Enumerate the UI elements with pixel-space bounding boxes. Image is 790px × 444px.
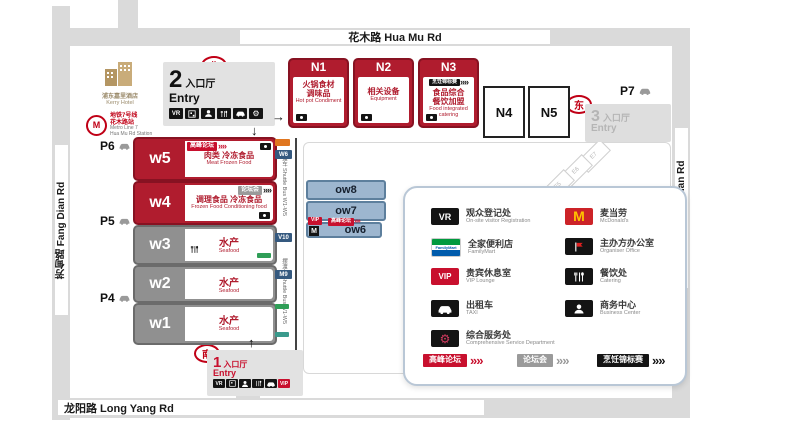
legend-row-mcdonalds[interactable]: M 麦当劳McDonald's bbox=[565, 208, 629, 225]
legend-badge-cooking-championship[interactable]: 烹饪锦标赛 »» bbox=[597, 354, 664, 367]
entry-3[interactable]: 3 入口厅 Entry bbox=[585, 104, 671, 142]
hall-ow8-label: ow8 bbox=[335, 184, 356, 196]
hall-w3[interactable]: w3 水产 Seafood bbox=[133, 225, 277, 265]
legend-en: Business Center bbox=[600, 311, 640, 317]
metro-landmark: M 地铁7号线 花木路站 Metro Line 7 Hua Mu Rd Stat… bbox=[86, 113, 152, 137]
legend-row-business-center[interactable]: 商务中心Business Center bbox=[565, 300, 640, 317]
hall-n5-id: N5 bbox=[541, 105, 558, 120]
hall-w1[interactable]: w1 水产 Seafood bbox=[133, 303, 277, 345]
hall-w1-zh: 水产 bbox=[185, 312, 273, 327]
hall-e6-label: E6 bbox=[571, 166, 580, 175]
car-icon bbox=[118, 214, 131, 228]
entry-2-zh: 入口厅 bbox=[185, 75, 215, 90]
badge-label: 高峰论坛 bbox=[423, 354, 467, 367]
hall-n1[interactable]: N1 火锅食材调味品 Hot pot Condiment bbox=[288, 58, 349, 128]
camera-icon bbox=[260, 143, 271, 150]
taxi-icon bbox=[431, 300, 459, 317]
hall-w3-id: w3 bbox=[135, 227, 185, 263]
mcdonalds-icon: M bbox=[565, 208, 593, 225]
orange-marker bbox=[275, 139, 290, 146]
legend-row-vip-lounge[interactable]: VIP 贵宾休息室VIP Lounge bbox=[431, 268, 511, 285]
hall-ow6-label: ow6 bbox=[345, 224, 366, 236]
flag-icon bbox=[565, 238, 593, 255]
parking-p6: P6 bbox=[100, 139, 131, 153]
entry-2-en: Entry bbox=[169, 91, 269, 105]
legend-badge-forum[interactable]: 论坛会 »» bbox=[517, 354, 568, 367]
entry-1[interactable]: 1 入口厅 Entry VR VIP bbox=[207, 350, 303, 396]
hall-e7-label: E7 bbox=[589, 151, 598, 160]
hall-w4-en: Frozen Food Conditioning food bbox=[185, 205, 273, 211]
parking-p4: P4 bbox=[100, 291, 131, 305]
familymart-icon: FamilyMart bbox=[431, 238, 461, 257]
hall-n5[interactable]: N5 bbox=[528, 86, 570, 138]
car-icon bbox=[118, 139, 131, 153]
hotel-icon bbox=[103, 73, 137, 90]
hotel-name-zh: 浦东嘉里酒店 bbox=[92, 91, 148, 100]
entry-2[interactable]: 2 入口厅 Entry VR ⚙ bbox=[163, 62, 275, 126]
hall-n3-id: N3 bbox=[420, 60, 477, 75]
legend-row-organiser[interactable]: 主办方办公室Organiser Office bbox=[565, 238, 654, 255]
legend-row-registration[interactable]: VR 观众登记处On-site visitor Registration bbox=[431, 208, 531, 225]
utensils-icon bbox=[190, 241, 199, 259]
green-marker bbox=[275, 332, 289, 337]
road-top-stub bbox=[118, 0, 138, 30]
hall-w4-zh1: 调理食品 bbox=[196, 195, 228, 204]
green-marker bbox=[257, 253, 271, 258]
legend-en: FamilyMart bbox=[468, 250, 513, 256]
legend-panel: VR 观众登记处On-site visitor Registration Fam… bbox=[403, 186, 687, 386]
hall-w5-en: Meat Frozen Food bbox=[185, 161, 273, 167]
hall-w1-en: Seafood bbox=[185, 327, 273, 333]
hall-w5[interactable]: w5 高峰论坛 »» 肉类 冷冻食品 Meat Frozen Food bbox=[133, 137, 277, 181]
entry-2-services: VR ⚙ bbox=[169, 108, 269, 119]
chevrons-icon: »» bbox=[556, 354, 568, 367]
hall-n2[interactable]: N2 相关设备 Equipment bbox=[353, 58, 414, 128]
hall-n1-en: Hot pot Condiment bbox=[293, 99, 344, 105]
parking-p5: P5 bbox=[100, 214, 131, 228]
hall-n3-zh2: 餐饮加盟 bbox=[423, 97, 474, 106]
hall-ow8[interactable]: ow8 bbox=[306, 180, 386, 200]
person-icon bbox=[201, 108, 215, 119]
forum-badge: 论坛会 bbox=[238, 186, 262, 195]
chevrons-icon: »» bbox=[218, 142, 226, 151]
hall-w4-zh2: 冷冻食品 bbox=[230, 195, 262, 204]
camera-icon bbox=[296, 114, 307, 121]
hall-w4[interactable]: w4 论坛会 »» 调理食品 冷冻食品 Frozen Food Conditio… bbox=[133, 181, 277, 225]
hall-n1-id: N1 bbox=[290, 60, 347, 75]
entry-2-number: 2 bbox=[169, 66, 182, 94]
badge-label: 论坛会 bbox=[517, 354, 553, 367]
shuttle-stop-w6: W6 bbox=[275, 150, 292, 159]
badge-label: 烹饪锦标赛 bbox=[597, 354, 649, 367]
legend-en: McDonald's bbox=[600, 219, 629, 225]
hall-n3-zh1: 食品综合 bbox=[423, 88, 474, 97]
legend-badge-summit-forum[interactable]: 高峰论坛 »» bbox=[423, 354, 482, 367]
hall-n1-zh1: 火锅食材 bbox=[293, 80, 344, 89]
summit-forum-banner: 高峰论坛 »» bbox=[328, 218, 360, 226]
hall-ow7-label: ow7 bbox=[335, 205, 356, 217]
utensils-icon bbox=[252, 379, 264, 388]
legend-en: Organiser Office bbox=[600, 249, 654, 255]
store-icon bbox=[185, 108, 199, 119]
chevrons-icon: »» bbox=[354, 218, 360, 225]
metro-m-badge: M bbox=[309, 226, 319, 236]
parking-p5-label: P5 bbox=[100, 214, 115, 228]
legend-row-catering[interactable]: 餐饮处Catering bbox=[565, 268, 627, 285]
utensils-icon bbox=[217, 108, 231, 119]
cooking-championship-badge: 烹饪锦标赛 bbox=[429, 79, 460, 87]
expo-map: 花木路 Hua Mu Rd 龙阳路 Long Yang Rd 芳甸路 Fang … bbox=[0, 0, 790, 444]
legend-en: Comprehensive Service Department bbox=[466, 341, 555, 347]
metro-logo-icon: M bbox=[86, 115, 107, 136]
hotel-name-en: Kerry Hotel bbox=[92, 100, 148, 106]
vip-badge: VIP bbox=[308, 217, 322, 225]
vr-icon: VR bbox=[213, 379, 225, 388]
summit-forum-badge: 高峰论坛 bbox=[187, 142, 217, 151]
hall-w2-en: Seafood bbox=[185, 289, 273, 295]
gear-icon: ⚙ bbox=[431, 330, 459, 347]
utensils-icon bbox=[565, 268, 593, 285]
shuttle-stop-v10: V10 bbox=[275, 233, 292, 242]
hall-n3[interactable]: N3 烹饪锦标赛 »» 食品综合餐饮加盟 Food integrated cat… bbox=[418, 58, 479, 128]
gear-icon: ⚙ bbox=[249, 108, 263, 119]
camera-icon bbox=[259, 212, 270, 219]
legend-row-service[interactable]: ⚙ 综合服务处Comprehensive Service Department bbox=[431, 330, 555, 347]
store-icon bbox=[226, 379, 238, 388]
legend-en: Catering bbox=[600, 279, 627, 285]
familymart-wordmark: FamilyMart bbox=[435, 246, 456, 250]
chevrons-icon: »» bbox=[263, 186, 271, 195]
hall-n4-id: N4 bbox=[496, 105, 513, 120]
parking-p6-label: P6 bbox=[100, 139, 115, 153]
hall-w5-id: w5 bbox=[135, 139, 185, 179]
road-label-fang-dian: 芳甸路 Fang Dian Rd bbox=[55, 145, 68, 315]
car-icon bbox=[118, 291, 131, 305]
hall-w2[interactable]: w2 水产 Seafood bbox=[133, 265, 277, 303]
parking-p7-label: P7 bbox=[620, 84, 635, 98]
central-divider-line bbox=[295, 138, 297, 366]
road-label-hua-mu: 花木路 Hua Mu Rd bbox=[240, 30, 550, 44]
vip-icon: VIP bbox=[431, 268, 459, 285]
legend-en: On-site visitor Registration bbox=[466, 219, 531, 225]
legend-en: TAXI bbox=[466, 311, 493, 317]
hall-w5-zh2: 冷冻食品 bbox=[222, 151, 254, 160]
camera-icon bbox=[426, 114, 437, 121]
vip-icon: VIP bbox=[278, 379, 290, 388]
car-icon bbox=[638, 84, 652, 98]
arrow-up-icon: ↑ bbox=[248, 336, 255, 349]
hall-n2-en: Equipment bbox=[358, 97, 409, 103]
parking-p7: P7 bbox=[620, 84, 652, 98]
person-icon bbox=[239, 379, 251, 388]
hotel-landmark: 浦东嘉里酒店 Kerry Hotel bbox=[92, 60, 148, 106]
hall-w2-id: w2 bbox=[135, 267, 185, 301]
entry-3-en: Entry bbox=[591, 123, 665, 134]
shuttle-strip: 摆渡车 Shuttle Bus W1-W5 摆渡车 Shuttle Bus W1… bbox=[276, 138, 294, 364]
metro-line-zh: 地铁7号线 bbox=[110, 113, 152, 120]
entry-1-services: VR VIP bbox=[213, 379, 297, 388]
legend-row-familymart[interactable]: FamilyMart 全家便利店FamilyMart bbox=[431, 238, 513, 257]
arrow-right-icon: → bbox=[272, 110, 285, 123]
entry-1-en: Entry bbox=[213, 368, 297, 378]
taxi-icon bbox=[233, 108, 247, 119]
hall-n2-zh1: 相关设备 bbox=[358, 87, 409, 96]
hall-n4[interactable]: N4 bbox=[483, 86, 525, 138]
vr-icon: VR bbox=[431, 208, 459, 225]
hall-w4-id: w4 bbox=[135, 183, 185, 223]
green-marker bbox=[275, 304, 289, 309]
hall-w1-id: w1 bbox=[135, 305, 185, 343]
parking-p4-label: P4 bbox=[100, 291, 115, 305]
legend-en: VIP Lounge bbox=[466, 279, 511, 285]
shuttle-stop-m9: M9 bbox=[275, 270, 292, 279]
chevrons-icon: »» bbox=[470, 354, 482, 367]
vr-icon: VR bbox=[169, 108, 183, 119]
hall-n1-zh2: 调味品 bbox=[293, 89, 344, 98]
chevrons-icon: »» bbox=[652, 354, 664, 367]
person-icon bbox=[565, 300, 593, 317]
hall-n2-id: N2 bbox=[355, 60, 412, 75]
chevrons-icon: »» bbox=[460, 78, 468, 87]
hall-w2-zh: 水产 bbox=[185, 274, 273, 289]
hall-w5-zh1: 肉类 bbox=[204, 151, 220, 160]
road-label-long-yang: 龙阳路 Long Yang Rd bbox=[58, 400, 484, 415]
arrow-down-icon: ↓ bbox=[251, 124, 258, 137]
legend-row-taxi[interactable]: 出租车TAXI bbox=[431, 300, 493, 317]
camera-icon bbox=[361, 114, 372, 121]
taxi-icon bbox=[265, 379, 277, 388]
